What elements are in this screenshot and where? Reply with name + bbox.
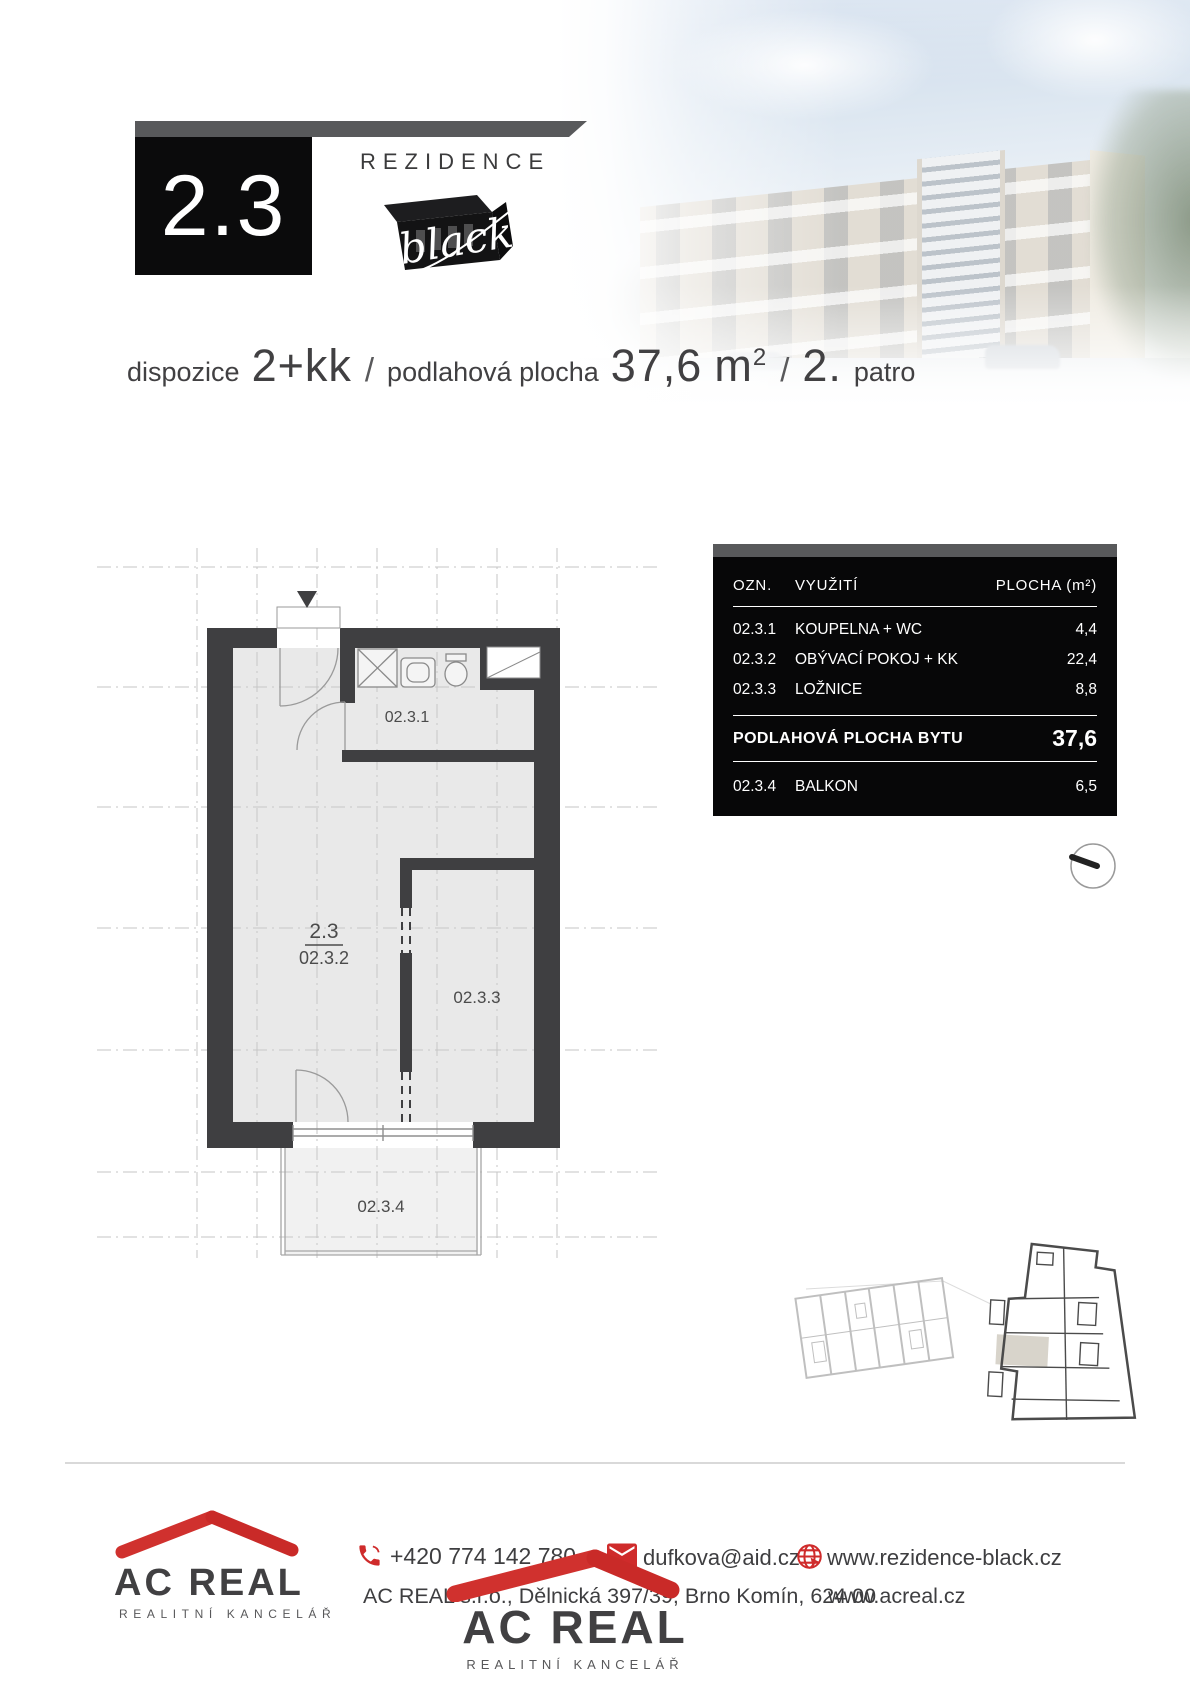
- keyplan-floor-overview: [795, 1278, 953, 1378]
- acreal-center-logo-subtitle: REALITNÍ KANCELÁŘ: [445, 1657, 705, 1672]
- footer-divider: [65, 1462, 1125, 1464]
- compass-icon: [1071, 844, 1115, 888]
- page: { "header": { "unit_number": "2.3", "bra…: [0, 0, 1190, 1684]
- acreal-logo-roof: [112, 1508, 302, 1560]
- apartment-interior: [233, 648, 534, 1122]
- website-company[interactable]: www.acreal.cz: [828, 1584, 965, 1609]
- living-label: 02.3.2: [299, 948, 349, 968]
- phone-icon: [356, 1542, 383, 1569]
- floor-plan: 02.3.1 2.3 02.3.2 02.3.3 02.3.4: [0, 0, 1190, 1684]
- acreal-center-logo-name: AC REAL: [445, 1603, 705, 1651]
- bathroom-window: [487, 647, 540, 678]
- acreal-center-logo: AC REAL REALITNÍ KANCELÁŘ: [445, 1603, 705, 1672]
- bathroom-label: 02.3.1: [385, 709, 430, 726]
- keyplan-unit-location: [985, 1242, 1144, 1426]
- plan-unit-label: 2.3: [309, 920, 338, 943]
- balcony-glass-door: [293, 1125, 473, 1141]
- balcony-label: 02.3.4: [357, 1197, 404, 1216]
- entrance-threshold: [277, 607, 340, 628]
- acreal-center-logo-roof: [443, 1546, 683, 1602]
- bedroom-label: 02.3.3: [453, 988, 500, 1007]
- acreal-logo-subtitle: REALITNÍ KANCELÁŘ: [119, 1607, 336, 1621]
- toilet-icon: [446, 654, 466, 661]
- acreal-logo-name: AC REAL: [114, 1562, 304, 1605]
- website-project[interactable]: www.rezidence-black.cz: [827, 1545, 1062, 1571]
- globe-icon: [796, 1543, 823, 1570]
- entrance-marker-icon: [297, 591, 317, 608]
